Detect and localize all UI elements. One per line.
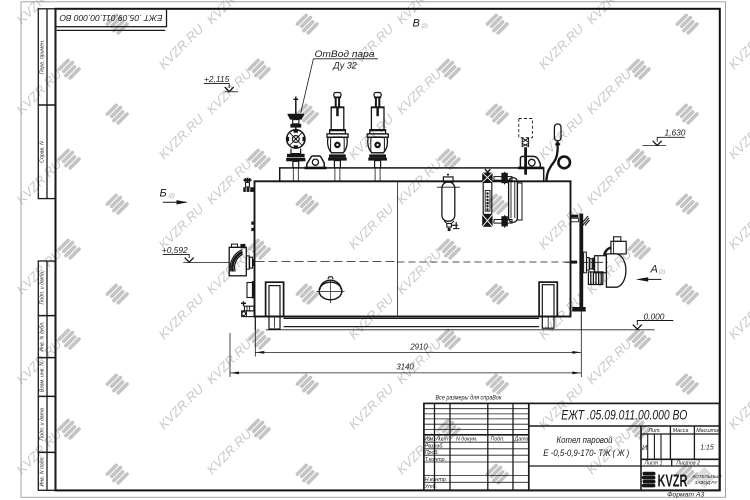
svg-text:Проб.: Проб. <box>425 450 439 456</box>
svg-text:ОтВод пара: ОтВод пара <box>315 49 375 59</box>
svg-text:ЕЖТ .05.09.011.00.000 ВО: ЕЖТ .05.09.011.00.000 ВО <box>59 13 162 23</box>
svg-text:Разраб.: Разраб. <box>425 443 444 449</box>
svg-text:Н.контр.: Н.контр. <box>425 477 447 483</box>
svg-text:Утб.: Утб. <box>425 484 437 490</box>
svg-text:Котел паровой: Котел паровой <box>557 435 614 446</box>
svg-text:Б: Б <box>160 188 167 200</box>
svg-text:1,630: 1,630 <box>665 128 686 138</box>
svg-text:Т.контр.: Т.контр. <box>425 457 446 463</box>
svg-text:2910: 2910 <box>409 342 428 351</box>
svg-text:Масса: Масса <box>673 428 689 434</box>
svg-text:А: А <box>650 264 658 276</box>
svg-text:+2,115: +2,115 <box>204 74 230 84</box>
svg-text:Изм.: Изм. <box>424 436 434 442</box>
svg-text:Перв. примен.: Перв. примен. <box>39 40 45 74</box>
svg-text:Лит.: Лит. <box>648 428 661 434</box>
svg-text:Справ. N: Справ. N <box>39 141 45 163</box>
svg-text:(2): (2) <box>169 194 175 200</box>
svg-text:И: И <box>642 443 648 452</box>
svg-text:Инв. N подл.: Инв. N подл. <box>39 456 45 486</box>
svg-text:3140: 3140 <box>396 363 414 372</box>
svg-text:Е -0,5-0,9-170- ТЖ ( Ж ): Е -0,5-0,9-170- ТЖ ( Ж ) <box>543 448 629 459</box>
svg-text:Подп. и дата: Подп. и дата <box>39 272 45 305</box>
svg-text:N докум.: N докум. <box>456 436 477 442</box>
svg-text:Лист: Лист <box>435 436 449 442</box>
svg-text:Дата: Дата <box>514 436 529 442</box>
svg-text:1:15: 1:15 <box>700 445 714 452</box>
svg-text:Лист 1: Лист 1 <box>644 460 663 466</box>
svg-text:KVZR: KVZR <box>658 471 688 491</box>
svg-text:Листов 2: Листов 2 <box>675 460 700 466</box>
svg-text:Подп. и дата: Подп. и дата <box>39 408 45 441</box>
svg-text:В: В <box>413 18 420 30</box>
svg-text:Подп.: Подп. <box>491 436 505 442</box>
svg-text:ЗАВОД.РУ: ЗАВОД.РУ <box>695 480 719 485</box>
svg-text:Инв. N дубл.: Инв. N дубл. <box>39 322 45 352</box>
svg-text:(2): (2) <box>422 24 428 30</box>
svg-text:Формат А3: Формат А3 <box>667 491 704 498</box>
svg-text:(2): (2) <box>659 270 665 276</box>
svg-text:0,000: 0,000 <box>644 312 665 322</box>
svg-text:ЕЖТ .05.09.011.00.000 ВО: ЕЖТ .05.09.011.00.000 ВО <box>561 408 687 423</box>
svg-text:+0,592: +0,592 <box>162 245 188 255</box>
svg-text:Ду 32: Ду 32 <box>332 61 356 71</box>
svg-text:Масштаб: Масштаб <box>696 428 722 434</box>
svg-text:Все размеры для спраВок: Все размеры для спраВок <box>436 394 503 402</box>
svg-text:КОТЕЛЬНЫЙ: КОТЕЛЬНЫЙ <box>693 472 723 479</box>
svg-text:Взам. инв. N: Взам. инв. N <box>39 362 45 392</box>
